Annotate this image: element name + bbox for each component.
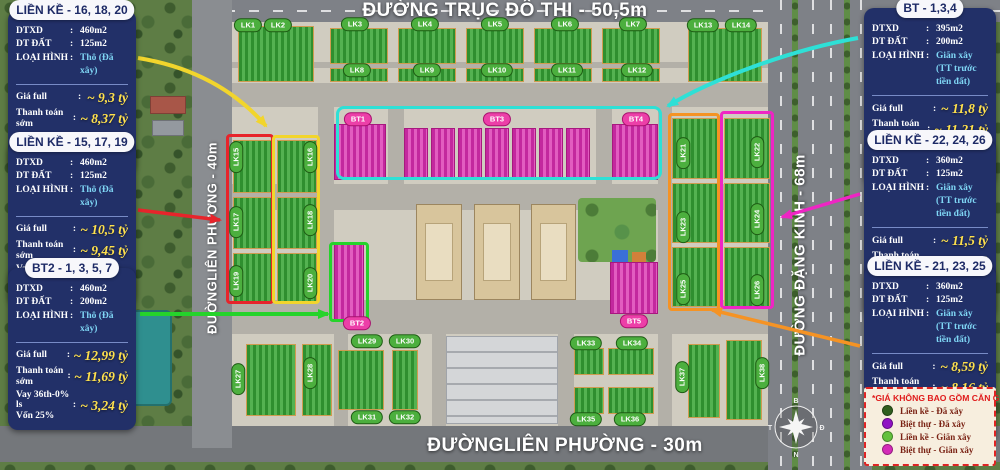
sport-court-orange — [632, 252, 646, 262]
legend-swatch-lienke-gianxay — [882, 431, 893, 442]
lk-block — [338, 350, 384, 410]
lk-block — [246, 344, 296, 416]
lk-block — [398, 28, 456, 64]
price-row: Thanh toán sớm:~ 11,69 tỷ — [16, 366, 128, 388]
card-title: LIỀN KỀ - 22, 24, 26 — [867, 130, 992, 150]
card-bt2-1-3-5-7: BT2 - 1, 3, 5, 7 DTXD:460m2 DT ĐẤT:200m2… — [8, 268, 136, 430]
spec-row: DTXD:460m2 — [16, 283, 128, 296]
block-label-lk10: LK10 — [481, 63, 513, 77]
sport-court-blue — [612, 250, 628, 262]
price-row: Giá full:~ 9,3 tỷ — [16, 90, 128, 106]
spec-row: DTXD:360m2 — [872, 155, 988, 168]
legend-swatch-lienke-daxay — [882, 405, 893, 416]
spec-row: LOẠI HÌNH:Giãn xây(TT trước tiền đất) — [872, 50, 988, 90]
spec-row: LOẠI HÌNH:Giãn xây(TT trước tiền đất) — [872, 182, 988, 222]
price-row: Giá full:~ 8,59 tỷ — [872, 359, 988, 375]
block-label-bt3: BT3 — [483, 112, 511, 126]
lk-block — [574, 348, 604, 375]
lk-block — [392, 350, 418, 410]
card-title: BT2 - 1, 3, 5, 7 — [25, 258, 119, 278]
spec-row: LOẠI HÌNH:Giãn xây(TT trước tiền đất) — [872, 308, 988, 348]
block-label-lk23: LK23 — [676, 211, 690, 243]
block-label-lk35: LK35 — [570, 412, 602, 426]
spec-row: DT ĐẤT:125m2 — [872, 168, 988, 181]
house — [152, 120, 184, 136]
divider — [872, 227, 988, 228]
spec-row: LOẠI HÌNH:Thô (Đã xây) — [16, 52, 128, 79]
block-label-bt1: BT1 — [344, 112, 372, 126]
divider — [16, 84, 128, 85]
legend-swatch-bietthu-gianxay — [882, 444, 893, 455]
block-label-bt5: BT5 — [620, 314, 648, 328]
spec-row: DT ĐẤT:200m2 — [16, 296, 128, 309]
price-row: Giá full:~ 11,5 tỷ — [872, 233, 988, 249]
block-label-lk34: LK34 — [616, 336, 648, 350]
block-label-lk32: LK32 — [389, 410, 421, 424]
highlight-box-magenta-lk22-24-26 — [720, 111, 774, 309]
card-title: BT - 1,3,4 — [896, 0, 963, 18]
block-label-lk31: LK31 — [351, 410, 383, 424]
price-row: Vay 36th-0% lsVốn 25%:~ 3,24 tỷ — [16, 390, 128, 423]
lk-block — [608, 348, 654, 375]
block-label-lk38: LK38 — [755, 357, 769, 389]
spec-row: DT ĐẤT:125m2 — [16, 170, 128, 183]
divider — [872, 95, 988, 96]
block-label-lk9: LK9 — [413, 63, 441, 77]
spec-row: DTXD:460m2 — [16, 25, 128, 38]
block-label-lk28: LK28 — [303, 357, 317, 389]
block-label-lk1: LK1 — [234, 18, 262, 32]
spec-row: DT ĐẤT:125m2 — [16, 38, 128, 51]
block-label-lk36: LK36 — [614, 412, 646, 426]
legend-swatch-bietthu-daxay — [882, 418, 893, 429]
apartment-tower — [474, 204, 520, 300]
inner-road — [432, 334, 446, 426]
inner-road — [232, 83, 768, 107]
block-label-lk7: LK7 — [619, 17, 647, 31]
block-label-lk15: LK15 — [229, 141, 243, 173]
block-label-lk13: LK13 — [687, 18, 719, 32]
lk-block — [534, 28, 592, 64]
block-label-lk22: LK22 — [750, 136, 764, 168]
block-label-lk27: LK27 — [231, 363, 245, 395]
lk-block — [688, 344, 720, 418]
card-title: LIỀN KỀ - 15, 17, 19 — [9, 132, 134, 152]
block-label-lk2: LK2 — [264, 18, 292, 32]
block-label-lk25: LK25 — [676, 273, 690, 305]
card-title: LIỀN KỀ - 21, 23, 25 — [867, 256, 992, 276]
highlight-box-green-bt2 — [329, 242, 369, 322]
block-label-lk20: LK20 — [303, 267, 317, 299]
lk-block — [608, 387, 654, 414]
block-label-lk19: LK19 — [229, 265, 243, 297]
spec-row: DTXD:395m2 — [872, 23, 988, 36]
spec-row: DT ĐẤT:125m2 — [872, 294, 988, 307]
road-label-bottom: ĐƯỜNGLIÊN PHƯỜNG - 30m — [427, 435, 703, 457]
block-label-lk3: LK3 — [341, 17, 369, 31]
legend-note: *GIÁ KHÔNG BAO GỒM CĂN GÓC — [872, 393, 988, 403]
spec-row: DTXD:460m2 — [16, 157, 128, 170]
divider — [16, 216, 128, 217]
spec-row: DT ĐẤT:200m2 — [872, 36, 988, 49]
block-label-lk18: LK18 — [303, 204, 317, 236]
spec-row: LOẠI HÌNH:Thô (Đã xây) — [16, 184, 128, 211]
lk-block — [466, 28, 524, 64]
apartment-tower — [416, 204, 462, 300]
block-label-lk5: LK5 — [481, 17, 509, 31]
legend: *GIÁ KHÔNG BAO GỒM CĂN GÓC Liền kề - Đã … — [864, 387, 996, 466]
price-row: Thanh toán sớm:~ 8,37 tỷ — [16, 108, 128, 130]
price-row: Giá full:~ 10,5 tỷ — [16, 222, 128, 238]
block-label-lk30: LK30 — [389, 334, 421, 348]
block-label-bt4: BT4 — [622, 112, 650, 126]
block-label-lk24: LK24 — [750, 203, 764, 235]
block-label-lk16: LK16 — [303, 141, 317, 173]
price-row: Giá full:~ 11,8 tỷ — [872, 101, 988, 117]
lk-block — [602, 28, 660, 64]
block-label-lk29: LK29 — [351, 334, 383, 348]
card-title: LIỀN KỀ - 16, 18, 20 — [9, 0, 134, 20]
block-label-lk37: LK37 — [675, 361, 689, 393]
lk-block — [688, 28, 762, 82]
road-label-right: ĐƯỜNG ĐẶNG KINH - 68m — [792, 154, 809, 356]
inner-road — [658, 334, 672, 426]
block-label-lk26: LK26 — [750, 274, 764, 306]
road-label-left: ĐƯỜNGLIÊN PHƯƠNG - 40m — [205, 142, 220, 334]
lk-block — [238, 26, 314, 82]
spec-row: LOẠI HÌNH:Thô (Đã xây) — [16, 310, 128, 337]
clubhouse-building — [446, 336, 558, 424]
block-label-lk12: LK12 — [621, 63, 653, 77]
spec-row: DTXD:360m2 — [872, 281, 988, 294]
divider — [16, 342, 128, 343]
block-label-lk8: LK8 — [343, 63, 371, 77]
block-label-lk4: LK4 — [411, 17, 439, 31]
bt-block — [610, 262, 658, 314]
legend-item: Liền kề - Đã xây — [872, 405, 988, 416]
block-label-lk17: LK17 — [229, 206, 243, 238]
road-right-highway — [768, 0, 872, 470]
legend-item: Biệt thự - Đã xây — [872, 418, 988, 429]
apartment-tower — [531, 204, 576, 300]
price-row: Giá full:~ 12,99 tỷ — [16, 348, 128, 364]
house — [150, 96, 186, 114]
block-label-lk6: LK6 — [551, 17, 579, 31]
lk-block — [330, 28, 388, 64]
block-label-bt2: BT2 — [343, 316, 371, 330]
lk-block — [574, 387, 604, 414]
legend-item: Biệt thự - Giãn xây — [872, 444, 988, 455]
block-label-lk14: LK14 — [725, 18, 757, 32]
block-label-lk11: LK11 — [551, 63, 583, 77]
block-label-lk33: LK33 — [570, 336, 602, 350]
legend-item: Liền kề - Giãn xây — [872, 431, 988, 442]
site-plan-map: ĐƯỜNG TRỤC ĐÔ THỊ - 50,5m ĐƯỜNGLIÊN PHƯỜ… — [0, 0, 1000, 470]
block-label-lk21: LK21 — [676, 137, 690, 169]
divider — [872, 353, 988, 354]
